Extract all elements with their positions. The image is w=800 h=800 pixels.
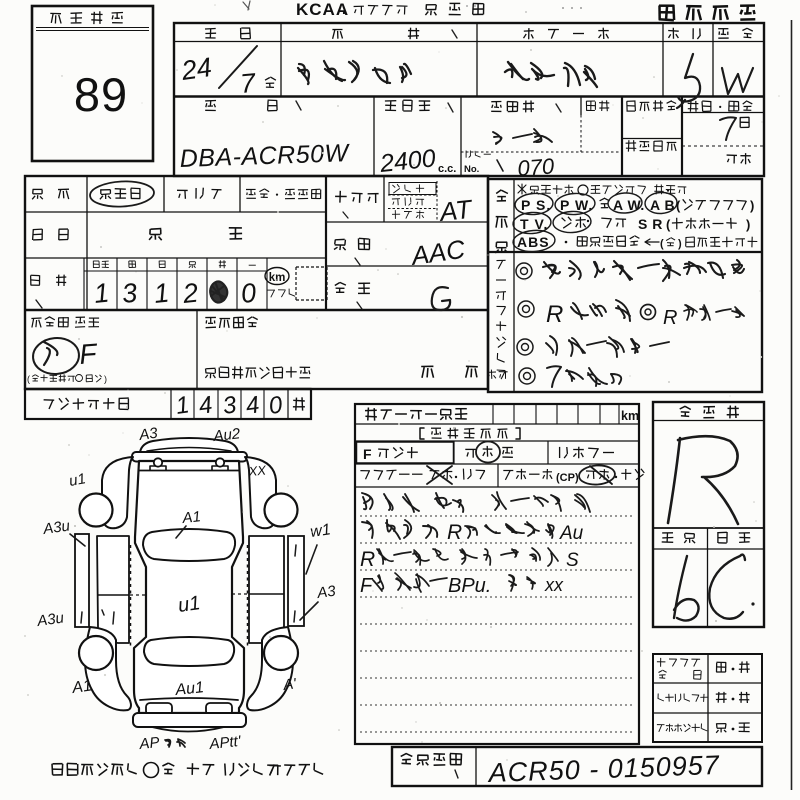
svg-text:89: 89 — [74, 68, 128, 121]
svg-text:A1: A1 — [70, 677, 93, 697]
svg-text:0: 0 — [267, 391, 285, 420]
svg-text:Au: Au — [559, 523, 584, 544]
svg-text:): ) — [746, 217, 750, 232]
svg-text:(: ( — [27, 374, 30, 384]
svg-text:XX: XX — [247, 462, 268, 479]
svg-text:070: 070 — [517, 153, 556, 181]
svg-text:u1: u1 — [68, 470, 87, 490]
svg-text:A W.: A W. — [613, 197, 645, 213]
svg-text:S: S — [566, 550, 579, 571]
svg-text:w1: w1 — [309, 521, 332, 541]
svg-text:F: F — [363, 446, 372, 462]
svg-text:R: R — [546, 301, 563, 328]
svg-text:ABS: ABS — [517, 234, 550, 250]
svg-text:APtt': APtt' — [208, 733, 243, 753]
svg-text:(: ( — [660, 238, 664, 250]
svg-text:DBA-ACR50W: DBA-ACR50W — [179, 139, 351, 173]
svg-text:(: ( — [676, 198, 681, 213]
svg-text:24: 24 — [179, 52, 214, 86]
svg-text:u1: u1 — [177, 592, 202, 617]
svg-text:1: 1 — [174, 391, 191, 420]
svg-text:R: R — [360, 548, 375, 571]
svg-text:): ) — [678, 238, 682, 250]
svg-text:No.: No. — [464, 164, 479, 175]
svg-text:T V.: T V. — [520, 216, 548, 232]
svg-text:): ) — [104, 374, 107, 384]
svg-text:S R: S R — [638, 216, 663, 232]
svg-text:km: km — [269, 272, 286, 284]
svg-text:Au2: Au2 — [212, 425, 242, 445]
svg-text:.: . — [342, 1, 346, 17]
svg-text:(CP): (CP) — [556, 472, 579, 484]
svg-text:AP: AP — [138, 734, 161, 753]
svg-text:R: R — [663, 307, 677, 329]
svg-text:ACR50 - 0150957: ACR50 - 0150957 — [486, 750, 720, 788]
svg-text:F: F — [360, 575, 374, 597]
svg-text:2400: 2400 — [378, 144, 437, 178]
svg-text:7: 7 — [239, 68, 258, 99]
svg-text:3: 3 — [120, 278, 138, 309]
svg-text:1: 1 — [152, 278, 170, 309]
svg-text:R: R — [447, 521, 462, 544]
svg-text:F: F — [78, 338, 99, 370]
svg-text:A3u: A3u — [35, 609, 65, 630]
svg-text:): ) — [750, 198, 754, 213]
svg-text:A': A' — [281, 675, 298, 694]
svg-text:AT: AT — [437, 194, 475, 228]
svg-text:A3u: A3u — [41, 517, 71, 538]
svg-text:A3: A3 — [315, 582, 337, 602]
svg-text:1: 1 — [92, 278, 110, 309]
svg-text:(: ( — [666, 217, 671, 232]
svg-text:4: 4 — [197, 391, 214, 420]
svg-text:Au1: Au1 — [174, 679, 205, 699]
svg-text:A3: A3 — [137, 424, 159, 444]
svg-text:BPu.: BPu. — [448, 575, 491, 597]
svg-text:3: 3 — [221, 391, 239, 420]
svg-text:2: 2 — [180, 278, 199, 310]
svg-text:xx: xx — [544, 575, 564, 595]
svg-text:A1: A1 — [181, 508, 202, 527]
svg-text:c.c.: c.c. — [438, 163, 456, 175]
svg-text:0: 0 — [239, 278, 257, 309]
svg-text:km: km — [621, 409, 639, 423]
svg-text:4: 4 — [244, 391, 261, 420]
